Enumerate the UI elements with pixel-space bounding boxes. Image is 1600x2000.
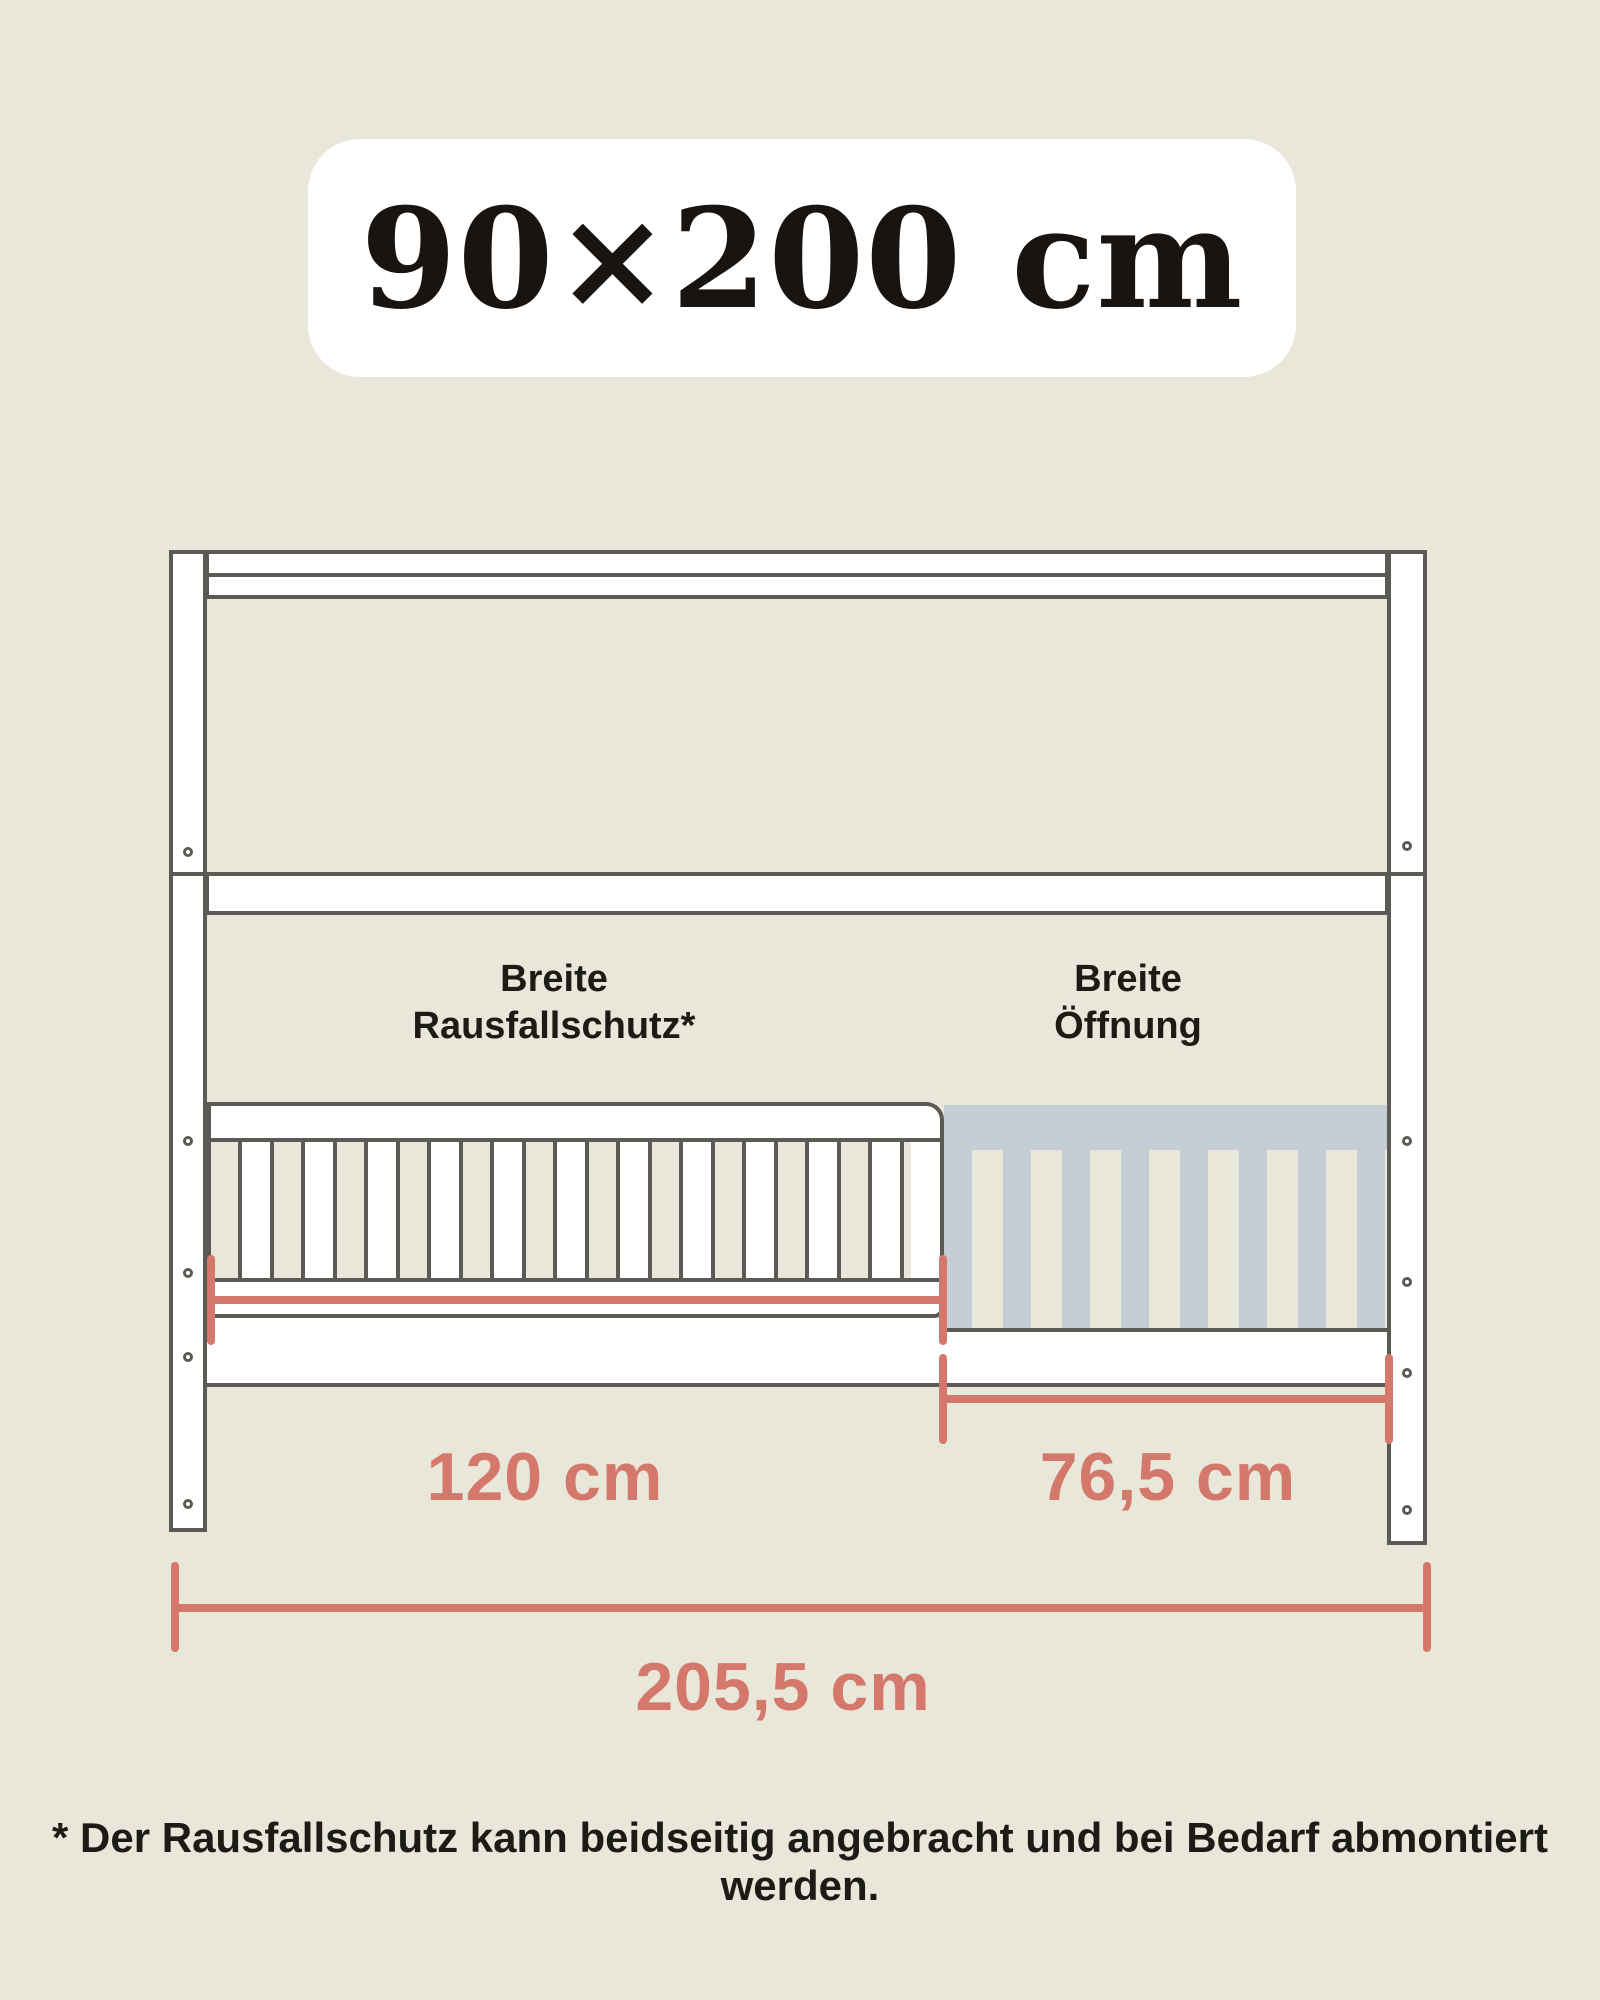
left-post [169, 550, 207, 1532]
opening-slats [944, 1150, 1387, 1328]
roof-top-rail-divider [205, 573, 1389, 577]
label-opening-width: Breite Öffnung [928, 956, 1328, 1050]
screw-hole [1402, 1277, 1412, 1287]
screw-hole [183, 1268, 193, 1278]
left-post-seam [169, 872, 207, 876]
right-post [1387, 550, 1427, 1545]
screw-hole [1402, 1368, 1412, 1378]
screw-hole [1402, 1136, 1412, 1146]
label-opening-width-line2: Öffnung [1054, 1005, 1202, 1047]
screw-hole [183, 847, 193, 857]
dimension-total-label: 205,5 cm [583, 1648, 983, 1726]
dimension-opening-label: 76,5 cm [968, 1438, 1368, 1516]
dimension-opening-tick-right [1385, 1354, 1393, 1444]
screw-hole [1402, 1505, 1412, 1515]
screw-hole [183, 1352, 193, 1362]
right-post-seam [1387, 872, 1427, 876]
screw-hole [1402, 841, 1412, 851]
guard-rail [207, 1102, 944, 1318]
label-guard-width: Breite Rausfallschutz* [354, 956, 754, 1050]
guard-rail-slats [211, 1142, 911, 1278]
dimension-total-line [175, 1604, 1427, 1612]
dimension-opening-line [943, 1395, 1389, 1403]
screw-hole [183, 1499, 193, 1509]
guard-rail-bottom-beam-line [211, 1278, 940, 1282]
dimension-total-tick-right [1423, 1562, 1431, 1652]
label-guard-width-line1: Breite [500, 958, 608, 1000]
label-guard-width-line2: Rausfallschutz* [413, 1005, 696, 1047]
opening-top-band [944, 1105, 1387, 1150]
dimension-opening-tick-left [939, 1354, 947, 1444]
screw-hole [183, 1136, 193, 1146]
size-badge-title: 90×200 cm [308, 139, 1296, 377]
size-badge: 90×200 cm [308, 139, 1296, 377]
middle-rail [205, 872, 1389, 915]
dimension-total-tick-left [171, 1562, 179, 1652]
dimension-guard-tick-right [939, 1255, 947, 1345]
roof-top-rail [205, 550, 1389, 599]
page-canvas: 90×200 cm Breite Rausfallschutz* Breite … [0, 0, 1600, 2000]
opening-section [944, 1105, 1387, 1332]
dimension-guard-line [211, 1296, 943, 1304]
dimension-guard-tick-left [207, 1255, 215, 1345]
footnote: * Der Rausfallschutz kann beidseitig ang… [0, 1814, 1600, 1910]
label-opening-width-line1: Breite [1074, 958, 1182, 1000]
dimension-guard-label: 120 cm [345, 1438, 745, 1516]
